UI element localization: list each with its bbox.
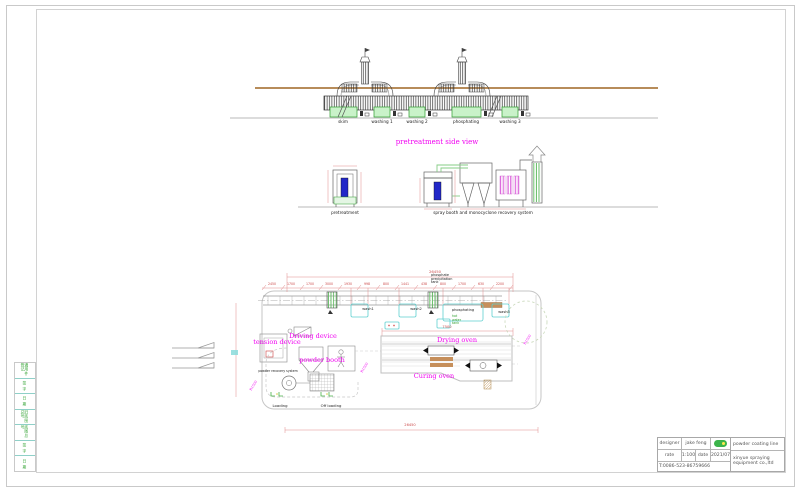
hanger-marks — [271, 392, 333, 396]
tank-label-washing3: washing 3 — [499, 120, 520, 124]
date-value: 2021/07 — [711, 450, 730, 461]
plan-wash3-label: wash3 — [498, 311, 510, 315]
dim-10: 1700 — [458, 283, 466, 286]
drawing-linework — [0, 0, 800, 493]
offloading-label: Off loading — [321, 404, 342, 408]
recovery-filter — [310, 374, 334, 391]
recovery-system-label: powder recovery system — [258, 370, 297, 373]
tank-label-phosphating: phosphating — [453, 120, 479, 124]
plan-view-linework — [172, 273, 547, 433]
logo-cell — [711, 438, 730, 449]
strip-cell-text: 底图总号 — [21, 425, 29, 440]
strip-cell: 旧底图总号 — [15, 410, 35, 426]
designer-value: jake feng — [682, 438, 711, 449]
scale-label: rate — [658, 450, 682, 461]
phone-number: T:0086-523-86759666 — [658, 462, 730, 471]
tank-label-washing1: washing 1 — [371, 120, 392, 124]
strip-cell-text: 通用件登记 — [21, 363, 29, 378]
filter-cartridges — [500, 176, 519, 194]
hot-water-tank-note: hot water tank — [452, 315, 465, 326]
elevation-right-label: spray booth and monocyclone recovery sys… — [433, 211, 533, 215]
duct-pipes — [437, 165, 468, 196]
strip-cell-text: 日 期 — [23, 396, 27, 406]
strip-cell: 日 期 — [15, 456, 35, 471]
dim-8: 438 — [421, 283, 427, 286]
elevation-linework — [298, 146, 658, 209]
strip-cell: 底图总号 — [15, 425, 35, 441]
dim-0: 2450 — [268, 283, 276, 286]
dim-7: 1441 — [401, 283, 409, 286]
flow-arrows — [172, 343, 214, 369]
elevation-left-label: pretreatment — [331, 211, 359, 215]
driving-device-label: Driving device — [289, 333, 337, 340]
side-view-linework — [230, 48, 658, 118]
left-margin-strip: 通用件登记 签 字 日 期 旧底图总号 底图总号 签 字 日 期 — [14, 362, 36, 472]
dim-12: 2200 — [496, 283, 504, 286]
scale-value: 1:100 — [682, 450, 696, 461]
designer-label: designer — [658, 438, 682, 449]
plan-wash2-label: wash2 — [410, 308, 422, 312]
strip-cell: 签 字 — [15, 441, 35, 457]
strip-cell: 签 字 — [15, 379, 35, 395]
phosphate-tank-note: phosphate precipitation tank — [431, 274, 458, 285]
recovery-fan — [282, 376, 296, 390]
dim-1: 1700 — [287, 283, 295, 286]
powder-booth-label: powder booth — [299, 357, 345, 364]
strip-cell-text: 旧底图总号 — [21, 410, 29, 425]
cad-drawing-sheet: skim washing 1 washing 2 phosphating was… — [0, 0, 800, 493]
curing-oven-label: Curing oven — [414, 373, 454, 380]
dim-2: 1700 — [306, 283, 314, 286]
drying-oven-fan-unit — [428, 346, 454, 355]
dim-3: 3000 — [325, 283, 333, 286]
strip-cell-text: 日 期 — [23, 459, 27, 469]
tank-label-washing2: washing 2 — [406, 120, 427, 124]
dim-4: 1930 — [344, 283, 352, 286]
oven-dimension: 7500 — [442, 326, 451, 330]
curing-oven-fan-unit — [470, 360, 497, 371]
project-title: powder coating line — [731, 438, 784, 451]
strip-cell-text: 签 字 — [23, 443, 27, 453]
plan-wash1-label: wash1 — [362, 308, 374, 312]
side-view-title: pretreatment side view — [396, 139, 479, 146]
strip-cell: 日 期 — [15, 394, 35, 410]
dim-6: 800 — [383, 283, 389, 286]
title-block: designer jake feng rate 1:100 date 2021/… — [657, 437, 785, 472]
plan-phosphating-label: phosphating — [452, 309, 474, 313]
loading-label: Loading — [273, 404, 288, 408]
date-label: date — [696, 450, 711, 461]
company-name: xinyue spraying equipment co.,ltd — [731, 451, 784, 471]
drying-oven-label: Drying oven — [437, 337, 477, 344]
strip-cell: 通用件登记 — [15, 363, 35, 379]
strip-cell-text: 签 字 — [23, 381, 27, 391]
dim-11: 630 — [478, 283, 484, 286]
plan-bottom-dimension: 26450 — [404, 424, 415, 428]
dim-5: 998 — [364, 283, 370, 286]
company-logo — [714, 440, 727, 447]
tank-label-skim: skim — [338, 120, 348, 124]
